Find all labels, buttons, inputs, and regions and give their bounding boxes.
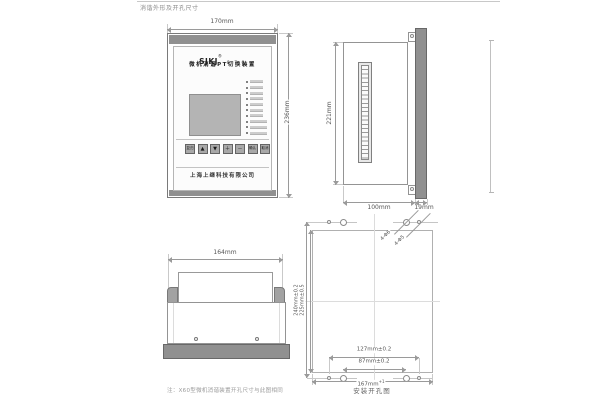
led-dot-icon xyxy=(246,121,248,123)
minus-button: － xyxy=(235,144,245,154)
page-title: 消谐外形及开孔尺寸 xyxy=(140,3,199,12)
front-face: SJKJ®8 7 0 微机消谐PT切换装置 复归 ▲ ▼ ＋ － 确认 取消 上… xyxy=(173,46,272,191)
case-top-section xyxy=(178,272,273,303)
screw-icon xyxy=(194,337,198,341)
led-dot-icon xyxy=(246,104,248,106)
case-inner-line xyxy=(173,303,174,343)
screw-icon xyxy=(410,34,414,38)
depth-dim-label: 100mm xyxy=(366,205,391,211)
hole-spacing-inner-label: 87mm±0.2 xyxy=(357,359,390,365)
lcd-screen xyxy=(189,94,241,136)
led-dot-icon xyxy=(246,109,248,111)
mounting-clip-right xyxy=(274,287,285,303)
terminal-strip xyxy=(361,65,369,160)
led-label xyxy=(250,92,263,95)
front-panel-top-profile xyxy=(163,344,290,359)
cancel-button: 取消 xyxy=(260,144,270,154)
plus-button: ＋ xyxy=(223,144,233,154)
divider xyxy=(176,139,269,140)
hole-center-line xyxy=(393,222,438,223)
led-dot-icon xyxy=(246,87,248,89)
extension-line xyxy=(419,358,420,374)
hole-spacing-vertical-dim-line xyxy=(306,222,307,378)
sheet-border-line xyxy=(490,40,491,193)
front-panel-side-profile xyxy=(415,28,427,199)
screw-icon xyxy=(410,187,414,191)
mounting-hole-small xyxy=(327,376,331,380)
hole-spacing-outer-label: 127mm±0.2 xyxy=(356,347,393,353)
hole-center-line xyxy=(393,378,433,379)
extension-line xyxy=(307,378,325,379)
led-label xyxy=(250,114,263,117)
terminal-block xyxy=(358,62,372,163)
case-body-top-view xyxy=(167,302,286,344)
front-height-dim-label: 236mm xyxy=(285,99,291,124)
led-label xyxy=(250,109,263,112)
led-label xyxy=(250,126,267,129)
note-text: 注：X60型微机消谐装置开孔尺寸与此图相同 xyxy=(167,386,283,394)
confirm-button: 确认 xyxy=(248,144,258,154)
bottom-width-dim-label: 164mm xyxy=(212,250,237,256)
led-label xyxy=(250,86,263,89)
front-width-dim-label: 170mm xyxy=(209,19,234,25)
down-arrow-button: ▼ xyxy=(210,144,220,154)
led-label xyxy=(250,97,263,100)
drawing-sheet: 消谐外形及开孔尺寸 170mm SJKJ®8 7 0 微机消谐PT切换装置 复归… xyxy=(0,0,600,400)
cutout-height-label: 225mm±0.5 xyxy=(301,283,306,316)
hole-spacing-inner-dim-line xyxy=(343,369,406,370)
mounting-hole-small xyxy=(417,376,421,380)
registered-mark: ® xyxy=(218,54,222,59)
led-dot-icon xyxy=(246,98,248,100)
led-label xyxy=(250,80,263,83)
device-body-side xyxy=(343,42,408,185)
bottom-width-dim-line xyxy=(168,259,283,260)
depth-dim-line xyxy=(343,202,415,203)
case-inner-line xyxy=(279,303,280,343)
extension-line xyxy=(307,222,325,223)
led-indicator-column xyxy=(246,79,271,136)
led-dot-icon xyxy=(246,115,248,117)
cutout-height-dim-line xyxy=(310,230,311,373)
led-dot-icon xyxy=(246,132,248,134)
panel-thickness-dim-line xyxy=(415,202,427,203)
mounting-hole-small xyxy=(327,220,331,224)
diagram-caption: 安装开孔图 xyxy=(353,385,391,395)
led-dot-icon xyxy=(246,126,248,128)
side-height-dim-line xyxy=(335,42,336,185)
mounting-clip-left xyxy=(167,287,178,303)
device-front-panel: SJKJ®8 7 0 微机消谐PT切换装置 复归 ▲ ▼ ＋ － 确认 取消 上… xyxy=(167,33,278,198)
divider xyxy=(176,167,269,168)
front-panel-buttons: 复归 ▲ ▼ ＋ － 确认 取消 xyxy=(185,144,270,154)
led-label xyxy=(250,132,267,135)
center-line-horizontal xyxy=(305,301,440,302)
front-width-dim-line xyxy=(167,29,278,30)
device-name: 微机消谐PT切换装置 xyxy=(174,63,271,69)
side-height-dim-label: 221mm xyxy=(327,100,333,125)
led-dot-icon xyxy=(246,81,248,83)
reset-button: 复归 xyxy=(185,144,195,154)
led-row xyxy=(246,130,271,136)
sheet-top-rule xyxy=(137,1,500,2)
mounting-hole-large xyxy=(340,219,347,226)
company-name: 上海上继科技有限公司 xyxy=(174,174,271,180)
led-label xyxy=(250,103,263,106)
led-dot-icon xyxy=(246,92,248,94)
up-arrow-button: ▲ xyxy=(198,144,208,154)
panel-top-bar xyxy=(169,35,276,44)
cutout-width-tolerance: +1 xyxy=(379,379,385,384)
led-label xyxy=(250,120,267,123)
center-line-vertical xyxy=(374,214,375,380)
screw-icon xyxy=(255,337,259,341)
